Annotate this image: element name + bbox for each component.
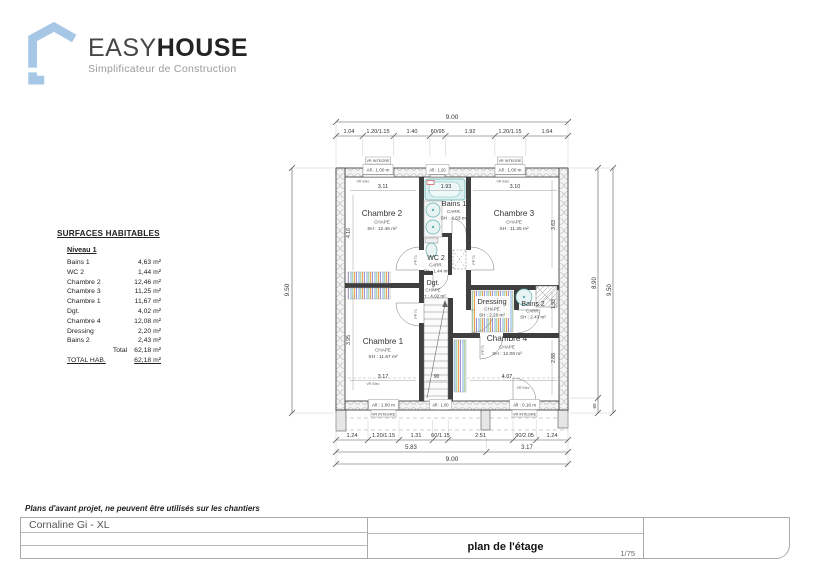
dim: 7 <box>451 375 453 379</box>
svg-text:Chambre 2: Chambre 2 <box>362 209 403 218</box>
room-bains1-label: Bains 1 CARR. SH : 4.63 m² <box>441 199 468 222</box>
shutter-note: VR Elec <box>357 180 370 184</box>
table-row: Chambre 111,67 m² <box>67 298 161 308</box>
title-block-project-cell: Cornaline Gi - XL <box>20 517 368 559</box>
svg-text:CHAPE: CHAPE <box>499 345 515 350</box>
surfaces-title: SURFACES HABITABLES <box>57 229 161 238</box>
attic-hatch <box>453 250 466 269</box>
table-row: Chambre 212,46 m² <box>67 279 161 289</box>
svg-text:Chambre 1: Chambre 1 <box>363 337 404 346</box>
svg-text:SH : 12.46 m²: SH : 12.46 m² <box>367 226 397 232</box>
shutter-note: VR Elec <box>517 386 530 390</box>
dim: 1.53 <box>551 299 557 309</box>
brand-name: EASYHOUSE <box>88 36 248 61</box>
door-ref: PP.73 <box>472 255 476 264</box>
shutter-note: VR Elec <box>497 180 510 184</box>
red-annotation-mark <box>427 181 434 185</box>
title-block-title-cell: plan de l'étage 1/75 <box>368 517 643 559</box>
dim-left-overall: 9.50 <box>284 283 291 296</box>
dim: 1.04 <box>344 129 355 135</box>
plan-sheet: { "logo": { "brand_light": "EASY", "bran… <box>0 0 820 580</box>
title-block-empty-row <box>368 518 643 534</box>
dim-right-inner: 8.90 <box>592 277 598 289</box>
svg-text:Dgt.: Dgt. <box>427 280 440 287</box>
svg-text:CARR.: CARR. <box>429 263 443 268</box>
svg-text:CHAPE: CHAPE <box>425 288 440 293</box>
dim: 4.16 <box>346 228 352 238</box>
room-chambre3-label: Chambre 3 CHAPE SH : 11.25 m² <box>494 209 535 232</box>
room-chambre1-label: Chambre 1 CHAPE SH : 11.67 m² <box>363 337 404 360</box>
window-shutter-label: VR INTEGRE <box>498 159 522 163</box>
dim-bottom-overall: 9.00 <box>446 456 459 463</box>
dim: 5.83 <box>405 445 417 451</box>
dim: 2.51 <box>475 433 486 439</box>
window-shutter-label: VR INTEGRE <box>372 412 396 416</box>
svg-text:CARR.: CARR. <box>526 309 540 314</box>
logo-text: EASYHOUSE Simplificateur de Construction <box>88 36 248 75</box>
floor-plan: VR INTEGRE All : 1.00 m All : 1.20 VR IN… <box>270 100 640 480</box>
house-bracket-icon <box>20 22 82 86</box>
svg-text:Dressing: Dressing <box>477 297 506 306</box>
surfaces-table: SURFACES HABITABLES Niveau 1 Bains 14,63… <box>57 229 161 367</box>
dim-right-base: 60 <box>592 403 597 409</box>
table-row: Chambre 311,25 m² <box>67 288 161 298</box>
easyhouse-logo: EASYHOUSE Simplificateur de Construction <box>20 22 248 86</box>
dim: 1.92 <box>465 129 476 135</box>
svg-text:SH : 4.63 m²: SH : 4.63 m² <box>441 216 468 222</box>
room-chambre4-label: Chambre 4 CHAPE SH : 12.08 m² <box>487 334 528 357</box>
window-shutter-label: VR INTEGRE <box>513 412 537 416</box>
window-sill-label: All : 1.00 <box>432 403 449 408</box>
disclaimer-text: Plans d'avant projet, ne peuvent être ut… <box>25 504 260 513</box>
drawing-scale: 1/75 <box>620 549 635 558</box>
svg-text:Bains 1: Bains 1 <box>442 199 467 208</box>
title-block-end-cell <box>643 517 790 559</box>
dim: 2.88 <box>551 353 557 363</box>
dim: 3.10 <box>510 184 521 190</box>
table-row: Chambre 412,08 m² <box>67 318 161 328</box>
dim: 1.24 <box>547 433 558 439</box>
dim: 1.93 <box>441 184 452 190</box>
svg-text:Chambre 4: Chambre 4 <box>487 334 528 343</box>
brand-tagline: Simplificateur de Construction <box>88 64 248 75</box>
svg-text:CHAPE: CHAPE <box>484 307 499 312</box>
svg-text:SH : 12.08 m²: SH : 12.08 m² <box>492 351 522 357</box>
drawing-title: plan de l'étage <box>468 541 544 553</box>
dim: 1.64 <box>542 129 553 135</box>
dim: 90/2.05 <box>515 433 534 439</box>
svg-text:SH : 1.44 m²: SH : 1.44 m² <box>423 269 449 274</box>
dim: 3.17 <box>378 374 389 380</box>
dim: 60/95 <box>431 129 445 135</box>
total-hab-row: TOTAL HAB.62,18 m² <box>67 357 161 367</box>
svg-text:CHAPE: CHAPE <box>506 220 522 225</box>
table-row: Bains 22,43 m² <box>67 337 161 347</box>
svg-text:WC 2: WC 2 <box>427 255 445 262</box>
dim: 3.17 <box>521 445 533 451</box>
dim-top-overall: 9.00 <box>446 114 459 121</box>
toilet-tank <box>425 238 438 243</box>
svg-text:CARR.: CARR. <box>447 209 461 214</box>
window-sill-label: All : 1.00 m <box>372 403 395 408</box>
brand-easy: EASY <box>88 34 157 62</box>
door-ref: PP.73 <box>481 345 485 354</box>
svg-text:Chambre 3: Chambre 3 <box>494 209 535 218</box>
dim: 60/1.15 <box>431 433 450 439</box>
surfaces-level: Niveau 1 <box>67 245 161 254</box>
staircase <box>424 298 448 401</box>
window-sill-label: All : 1.20 <box>429 167 446 172</box>
table-row: WC 21,44 m² <box>67 269 161 279</box>
svg-text:CHAPE: CHAPE <box>374 220 390 225</box>
room-dgt-label: Dgt. CHAPE SH : 4.02 m² <box>420 280 446 299</box>
table-row: Bains 14,63 m² <box>67 259 161 269</box>
svg-text:Bains 2: Bains 2 <box>521 301 544 308</box>
svg-text:SH : 4.02 m²: SH : 4.02 m² <box>420 294 446 299</box>
door-ref: PP.73 <box>414 309 418 318</box>
svg-text:SH : 11.67 m²: SH : 11.67 m² <box>368 354 398 360</box>
dim: 7 <box>421 375 423 379</box>
title-block-empty-row <box>21 533 367 546</box>
surfaces-rows: Bains 14,63 m² WC 21,44 m² Chambre 212,4… <box>67 259 161 357</box>
dim: 1.20/1.15 <box>372 433 395 439</box>
svg-text:SH : 2.43 m²: SH : 2.43 m² <box>520 315 546 320</box>
table-row: Dressing2,20 m² <box>67 328 161 338</box>
svg-text:CHAPE: CHAPE <box>375 348 391 353</box>
svg-text:SH : 11.25 m²: SH : 11.25 m² <box>499 226 529 232</box>
title-block: Cornaline Gi - XL plan de l'étage 1/75 <box>20 517 790 559</box>
total-row: Total62,18 m² <box>67 347 161 357</box>
room-wc2-label: WC 2 CARR. SH : 1.44 m² <box>423 255 449 274</box>
window-shutter-label: VR INTEGRE <box>366 159 390 163</box>
room-chambre2-label: Chambre 2 CHAPE SH : 12.46 m² <box>362 209 403 232</box>
window-sill-label: All : 0.16 m <box>513 403 536 408</box>
door-ref: PP.73 <box>414 255 418 264</box>
dim: 1.20/1.15 <box>366 129 389 135</box>
shutter-note: VR Elec <box>367 382 380 386</box>
dim: 1.24 <box>347 433 358 439</box>
window-sill-label: All : 1.00 m <box>367 167 390 172</box>
dim: 90 <box>434 374 440 380</box>
dim: 3.95 <box>346 335 352 345</box>
project-name: Cornaline Gi - XL <box>21 518 367 533</box>
dim: 1.40 <box>407 129 418 135</box>
window-sill-label: All : 1.00 m <box>499 167 522 172</box>
dim: 4.07 <box>502 374 513 380</box>
brand-house: HOUSE <box>157 34 248 62</box>
dim: 3.11 <box>378 184 388 190</box>
table-row: Dgt.4,02 m² <box>67 308 161 318</box>
dim: 3.63 <box>551 220 557 230</box>
dim: 1.31 <box>411 433 422 439</box>
dim-right-outer: 9.50 <box>607 284 613 296</box>
dim: 1.20/1.15 <box>498 129 521 135</box>
svg-text:SH : 2.20 m²: SH : 2.20 m² <box>479 313 505 318</box>
